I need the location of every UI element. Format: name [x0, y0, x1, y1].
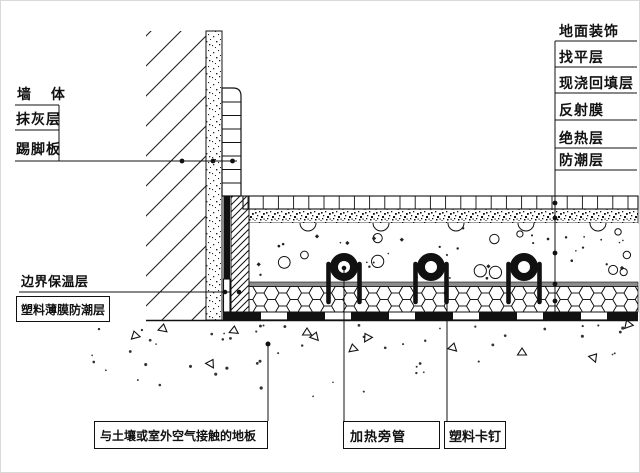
label-plaster-layer: 抹灰层	[16, 112, 61, 127]
label-wall: 墙 体	[17, 87, 69, 102]
edge-insulation-strip	[231, 196, 249, 312]
diagram-canvas	[1, 1, 640, 473]
soil-texture	[91, 319, 633, 398]
moisture-barrier-layer	[223, 312, 638, 320]
wall-hatch	[146, 31, 206, 320]
label-leveling-layer: 找平层	[559, 50, 604, 65]
label-floor-finish: 地面装饰	[559, 24, 619, 39]
reflective-film-layer	[249, 282, 638, 287]
label-plastic-film: 塑料薄膜防潮层	[21, 301, 105, 318]
label-plastic-film-box: 塑料薄膜防潮层	[16, 296, 110, 322]
label-plastic-clip: 塑料卡钉	[449, 426, 501, 445]
label-soil-floor-box: 与土壤或室外空气接触的地板	[94, 421, 268, 449]
label-heating-pipe: 加热旁管	[350, 426, 406, 445]
label-heating-pipe-box: 加热旁管	[343, 421, 440, 449]
plaster-layer	[206, 31, 222, 320]
label-reflective-film: 反射膜	[559, 103, 604, 118]
label-plastic-clip-box: 塑料卡钉	[444, 421, 506, 449]
label-edge-insulation: 边界保温层	[21, 275, 89, 289]
label-soil-floor: 与土壤或室外空气接触的地板	[100, 427, 256, 444]
label-thermal-insulation: 绝热层	[559, 131, 604, 146]
floor-finish-layer	[243, 196, 638, 209]
label-skirting-board: 踢脚板	[16, 142, 61, 157]
plastic-film-strip	[224, 196, 231, 312]
label-moisture-barrier: 防潮层	[559, 153, 604, 168]
label-backfill-layer: 现浇回填层	[559, 76, 634, 91]
skirting-board	[222, 88, 241, 196]
leveling-layer	[249, 209, 638, 223]
floor-heating-construction-detail-diagram: 墙 体 抹灰层 踢脚板 边界保温层 塑料薄膜防潮层 地面装饰 找平层 现浇回填层…	[0, 0, 640, 473]
